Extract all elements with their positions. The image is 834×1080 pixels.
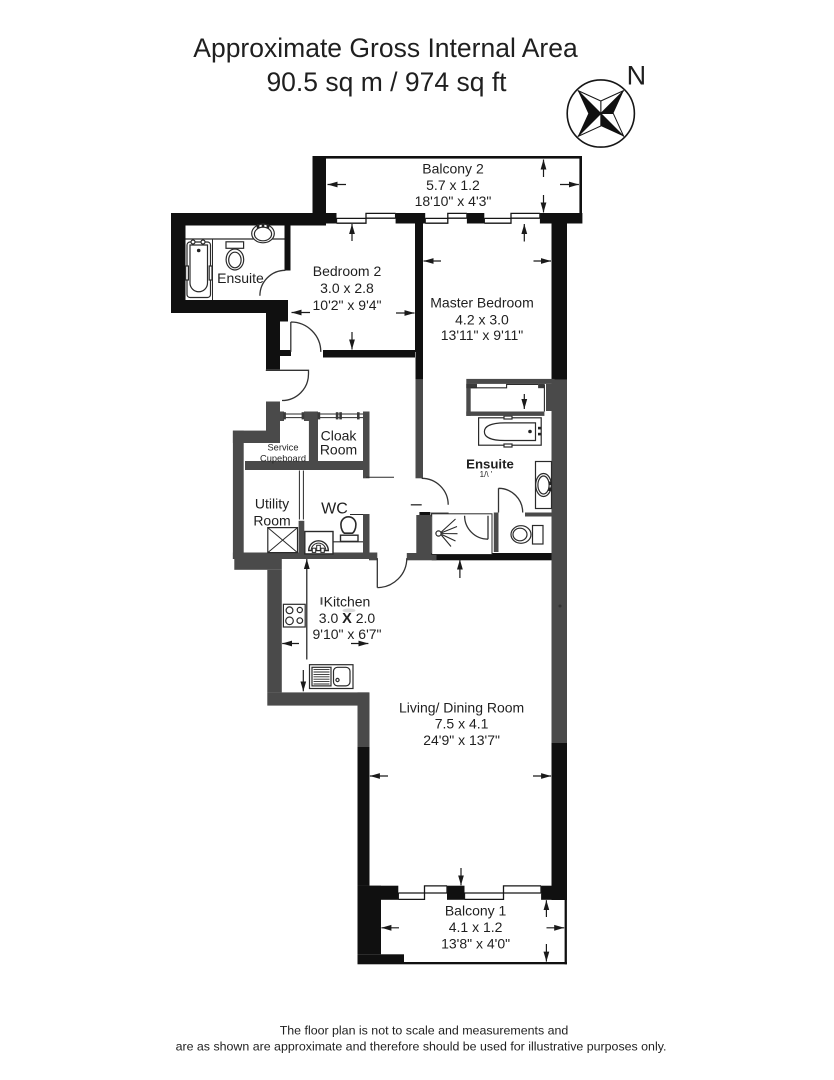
svg-text:Living/ Dining Room: Living/ Dining Room — [399, 699, 524, 715]
svg-text:13'8" x 4'0": 13'8" x 4'0" — [441, 935, 510, 951]
svg-text:Bedroom 2: Bedroom 2 — [313, 263, 382, 279]
svg-text:9'10" x 6'7": 9'10" x 6'7" — [313, 626, 382, 642]
svg-text:N: N — [627, 61, 647, 91]
svg-text:WC: WC — [321, 501, 348, 518]
svg-text:3.0 x 2.8: 3.0 x 2.8 — [320, 280, 374, 296]
svg-text:are as shown are approximate a: are as shown are approximate and therefo… — [176, 1040, 667, 1054]
svg-text:13'11" x 9'11": 13'11" x 9'11" — [441, 327, 524, 343]
svg-text:Room: Room — [253, 513, 290, 529]
svg-text:Approximate Gross Internal Are: Approximate Gross Internal Area — [193, 33, 578, 63]
svg-text:4.2 x 3.0: 4.2 x 3.0 — [455, 311, 509, 327]
svg-text:3.0 X 2.0: 3.0 X 2.0 — [319, 610, 376, 627]
svg-text:Master Bedroom: Master Bedroom — [430, 295, 533, 311]
svg-text:4.1 x 1.2: 4.1 x 1.2 — [449, 919, 503, 935]
svg-text:Utility: Utility — [255, 496, 289, 512]
svg-text:Balcony 1: Balcony 1 — [445, 903, 507, 919]
svg-text:Kitchen: Kitchen — [324, 593, 371, 609]
svg-text:Room: Room — [320, 442, 357, 458]
svg-text:5.7 x 1.2: 5.7 x 1.2 — [426, 177, 480, 193]
svg-text:Ensuite: Ensuite — [217, 270, 264, 286]
svg-text:Cupeboard: Cupeboard — [260, 453, 306, 463]
svg-text:18'10" x 4'3": 18'10" x 4'3" — [415, 193, 492, 209]
svg-text:90.5 sq m / 974 sq ft: 90.5 sq m / 974 sq ft — [266, 67, 507, 97]
svg-text:The floor plan is not to scale: The floor plan is not to scale and measu… — [280, 1024, 569, 1038]
svg-text:1/\ ': 1/\ ' — [480, 470, 493, 479]
svg-text:Balcony 2: Balcony 2 — [422, 160, 484, 176]
svg-text:10'2" x 9'4": 10'2" x 9'4" — [313, 297, 382, 313]
svg-text:24'9" x 13'7": 24'9" x 13'7" — [423, 732, 500, 748]
svg-text:7.5 x 4.1: 7.5 x 4.1 — [435, 716, 489, 732]
svg-text:Service: Service — [267, 443, 298, 453]
